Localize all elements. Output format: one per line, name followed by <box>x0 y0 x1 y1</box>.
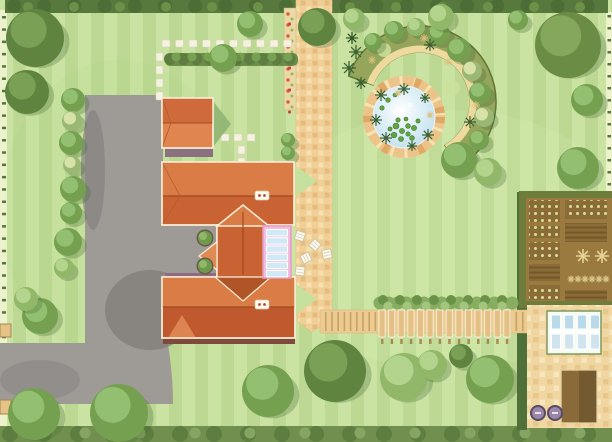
pergola <box>374 295 519 344</box>
garden-plan-illustration <box>0 0 612 442</box>
pond <box>363 76 445 158</box>
lounge-chair <box>322 249 333 260</box>
garden-path-and-patio <box>296 0 332 332</box>
greenhouse <box>547 311 601 354</box>
shed <box>561 370 597 423</box>
vegetable-garden <box>519 191 612 308</box>
plan-layers <box>0 0 612 442</box>
lounge-chair <box>295 266 305 276</box>
garden-plan-canvas <box>0 0 612 442</box>
